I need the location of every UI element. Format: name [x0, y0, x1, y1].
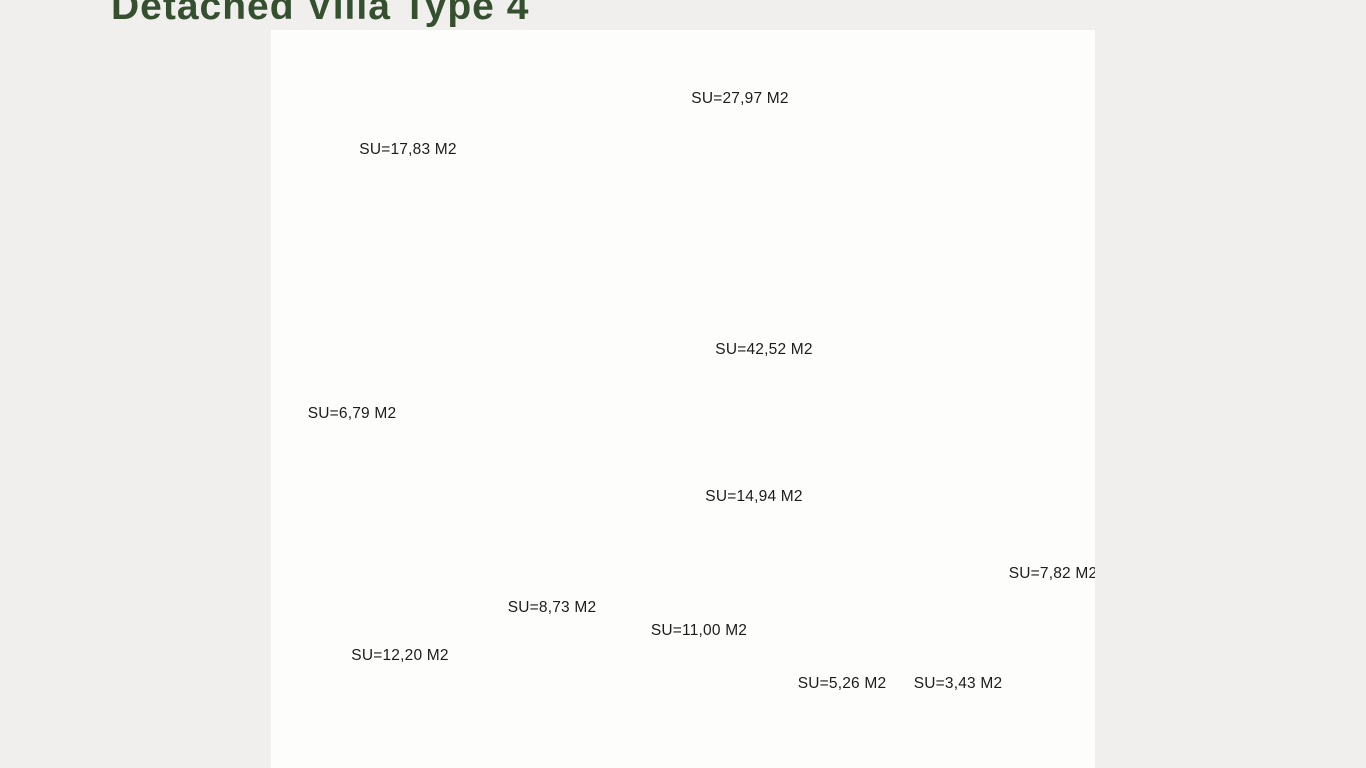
- room-area-label-entry: SU=7,82 M2: [1009, 565, 1095, 583]
- plan-label-overlay: SU=17,83 M2 SU=27,97 M2 SU=42,52 M2 SU=6…: [271, 30, 1095, 768]
- slide-page: Detached Villa Type 4 SU=17,83 M2 SU=27,…: [0, 0, 1366, 768]
- room-area-label-bedroom-2: SU=12,20 M2: [351, 647, 448, 665]
- room-area-label-bedroom-1: SU=17,83 M2: [359, 141, 456, 159]
- room-area-label-hallway: SU=14,94 M2: [705, 488, 802, 506]
- room-area-label-bathroom-1: SU=6,79 M2: [308, 405, 397, 423]
- page-title: Detached Villa Type 4: [111, 0, 529, 29]
- room-area-label-closet: SU=5,26 M2: [798, 675, 887, 693]
- room-area-label-bedroom-3: SU=11,00 M2: [651, 622, 747, 640]
- room-area-label-bathroom-2: SU=8,73 M2: [508, 599, 597, 617]
- room-area-label-terrace: SU=27,97 M2: [691, 90, 788, 108]
- room-area-label-living: SU=42,52 M2: [715, 341, 812, 359]
- room-area-label-bathroom-3: SU=3,43 M2: [914, 675, 1003, 693]
